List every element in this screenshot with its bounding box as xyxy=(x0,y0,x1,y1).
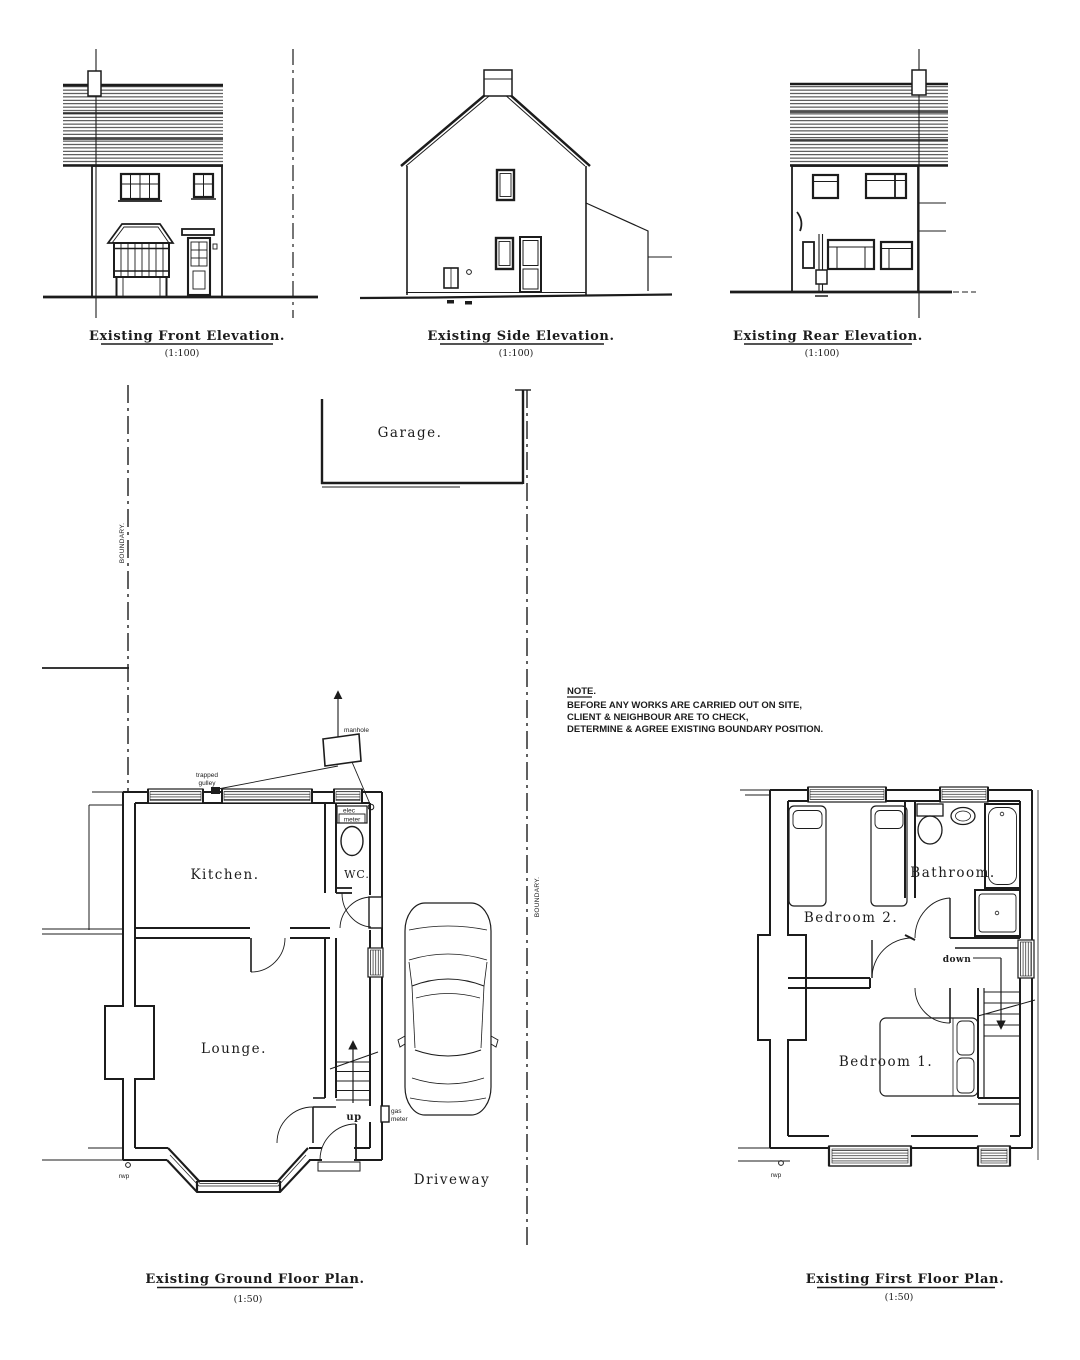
bay-window xyxy=(108,224,173,297)
single-bed xyxy=(871,806,907,906)
rwp-label: rwp xyxy=(119,1173,130,1180)
basin xyxy=(951,808,975,825)
rear-elevation: Existing Rear Elevation. (1:100) xyxy=(730,49,976,359)
ground-line xyxy=(360,295,672,299)
ground-floor-plan: manhole trapped gulley xyxy=(42,692,498,1305)
window xyxy=(978,1146,1010,1166)
kitchen-label: Kitchen. xyxy=(190,867,259,883)
internal-wall xyxy=(788,978,870,988)
hall-wall xyxy=(313,938,336,1107)
wc-label: WC. xyxy=(344,868,370,881)
window xyxy=(496,238,513,269)
window xyxy=(444,268,458,288)
window xyxy=(118,174,162,201)
front-elevation: Existing Front Elevation. (1:100) xyxy=(43,49,318,359)
pillow xyxy=(957,1058,974,1093)
side-door xyxy=(520,237,541,292)
single-bed xyxy=(789,806,826,906)
front-step xyxy=(318,1162,360,1171)
window xyxy=(148,789,203,803)
internal-wall xyxy=(135,928,330,938)
gas-meter-label: gas xyxy=(391,1108,402,1115)
gas-meter-label: meter xyxy=(391,1116,408,1123)
toilet-cistern xyxy=(917,804,943,816)
door-swing xyxy=(340,897,371,928)
elec-meter-label: meter xyxy=(344,817,361,824)
manhole-label: manhole xyxy=(344,727,369,734)
bathroom-label: Bathroom. xyxy=(910,865,995,881)
boundary-label-right: BOUNDARY. xyxy=(534,877,541,917)
back-door xyxy=(369,897,382,928)
rainwater-downpipe xyxy=(815,234,828,296)
roof-hatch xyxy=(63,84,223,166)
ground-floor-title: Existing Ground Floor Plan. xyxy=(145,1272,364,1287)
bedroom2-label: Bedroom 2. xyxy=(804,910,898,926)
window xyxy=(940,787,988,802)
first-floor-scale: (1:50) xyxy=(885,1292,914,1303)
driveway-label: Driveway xyxy=(414,1172,490,1188)
toilet xyxy=(341,827,363,856)
rear-elevation-scale: (1:100) xyxy=(805,348,840,359)
trapped-gulley-label: trapped xyxy=(196,772,218,779)
window xyxy=(803,242,814,268)
first-floor-plan: down rwp Bedroom 2. Bathr xyxy=(738,787,1038,1303)
neighbour-outline xyxy=(738,790,790,1161)
window xyxy=(881,242,912,269)
drainage xyxy=(211,692,370,804)
rear-lobby xyxy=(340,893,383,977)
note-line: DETERMINE & AGREE EXISTING BOUNDARY POSI… xyxy=(567,724,823,735)
door-swing xyxy=(320,1124,356,1160)
gas-meter-box xyxy=(381,1106,389,1122)
neighbour-outline xyxy=(42,792,123,1160)
side-elevation-scale: (1:100) xyxy=(499,348,534,359)
stairs-down-label: down xyxy=(943,955,972,965)
chimney xyxy=(912,70,926,95)
wall xyxy=(792,166,918,292)
shower-tray xyxy=(975,890,1020,936)
trapped-gulley-label: gulley xyxy=(199,780,217,787)
elec-meter-label: elec xyxy=(343,808,356,815)
rwp-label: rwp xyxy=(771,1172,782,1179)
side-elevation: Existing Side Elevation. (1:100) xyxy=(360,70,672,359)
window xyxy=(334,789,362,803)
window xyxy=(808,787,886,802)
note-line: BEFORE ANY WORKS ARE CARRIED OUT ON SITE… xyxy=(567,700,802,711)
pipe-bracket xyxy=(797,212,801,231)
vent xyxy=(467,270,472,275)
side-elevation-title: Existing Side Elevation. xyxy=(427,329,614,344)
rear-elevation-title: Existing Rear Elevation. xyxy=(733,329,923,344)
front-elevation-scale: (1:100) xyxy=(165,348,200,359)
door-swing xyxy=(251,938,285,972)
lounge-label: Lounge. xyxy=(201,1041,267,1057)
note-heading: NOTE. xyxy=(567,686,596,697)
site-plan: BOUNDARY. Garage. BOUNDARY. xyxy=(42,385,541,1247)
window xyxy=(866,174,906,198)
pillow xyxy=(875,811,903,829)
window xyxy=(1018,940,1034,978)
chimney xyxy=(88,71,101,96)
window xyxy=(222,789,312,803)
pillow xyxy=(957,1021,974,1055)
stairs-down xyxy=(973,958,1035,1104)
window xyxy=(497,170,514,200)
stairs-up-label: up xyxy=(346,1112,361,1123)
window xyxy=(828,240,874,269)
toilet xyxy=(918,816,942,844)
chimney xyxy=(484,70,512,96)
note-block: NOTE. BEFORE ANY WORKS ARE CARRIED OUT O… xyxy=(567,686,823,735)
door-swing xyxy=(872,938,912,978)
architectural-drawing: Existing Front Elevation. (1:100) xyxy=(0,0,1080,1360)
garage-label: Garage. xyxy=(378,425,443,441)
lean-to xyxy=(586,203,648,291)
drawing-sheet: Existing Front Elevation. (1:100) xyxy=(0,0,1080,1360)
boundary-label-left: BOUNDARY. xyxy=(119,523,126,563)
pillow xyxy=(793,811,822,829)
external-walls xyxy=(105,792,382,1160)
window xyxy=(813,175,838,198)
air-brick xyxy=(447,300,454,304)
window xyxy=(829,1146,911,1166)
bedroom1-label: Bedroom 1. xyxy=(839,1054,933,1070)
door-swing xyxy=(277,1107,313,1143)
air-brick xyxy=(465,301,472,305)
first-floor-title: Existing First Floor Plan. xyxy=(806,1272,1004,1287)
manhole xyxy=(323,734,361,766)
rwp xyxy=(126,1163,131,1168)
bay-window xyxy=(167,1148,310,1192)
door-swing xyxy=(915,898,950,938)
front-door xyxy=(182,229,217,295)
ground-floor-scale: (1:50) xyxy=(234,1294,263,1305)
note-line: CLIENT & NEIGHBOUR ARE TO CHECK, xyxy=(567,712,749,723)
window xyxy=(191,174,216,199)
car xyxy=(398,903,498,1115)
front-elevation-title: Existing Front Elevation. xyxy=(89,329,285,344)
